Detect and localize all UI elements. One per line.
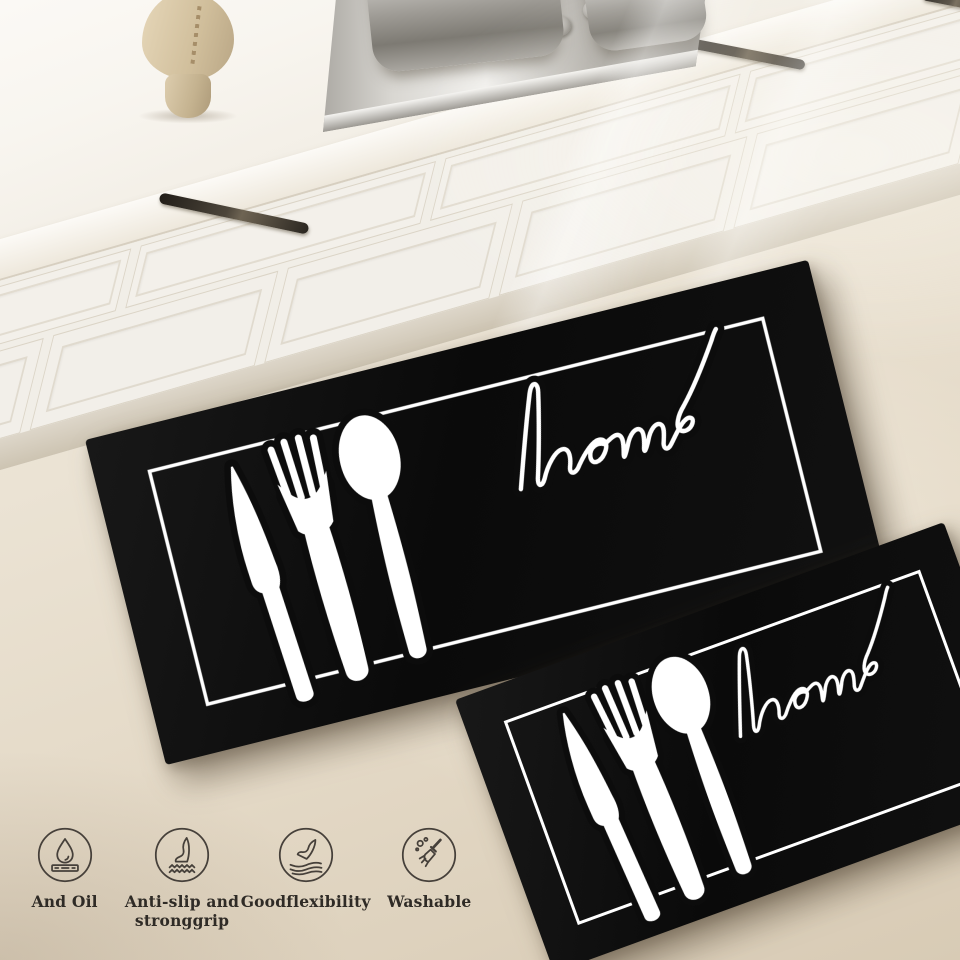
feature-badges-row: And Oil Anti-slip and stronggrip Good bbox=[6, 826, 488, 931]
feature-anti-slip: Anti-slip and stronggrip bbox=[123, 826, 240, 931]
decor-vase bbox=[138, 0, 238, 130]
feature-label: Goodflexibility bbox=[241, 893, 371, 912]
anti-slip-foot-icon bbox=[153, 826, 211, 884]
flexibility-foot-icon bbox=[277, 826, 335, 884]
feature-label: And Oil bbox=[32, 893, 98, 912]
feature-waterproof: And Oil bbox=[6, 826, 123, 931]
feature-label: Washable bbox=[387, 893, 471, 912]
waterproof-oil-drop-icon bbox=[36, 826, 94, 884]
feature-label: Anti-slip and stronggrip bbox=[125, 893, 239, 931]
feature-washable: Washable bbox=[371, 826, 488, 931]
product-photo-scene: And Oil Anti-slip and stronggrip Good bbox=[0, 0, 960, 960]
vase-base bbox=[165, 74, 211, 118]
feature-flexibility: Goodflexibility bbox=[241, 826, 371, 931]
vase-body bbox=[142, 0, 234, 80]
washable-brush-icon bbox=[400, 826, 458, 884]
